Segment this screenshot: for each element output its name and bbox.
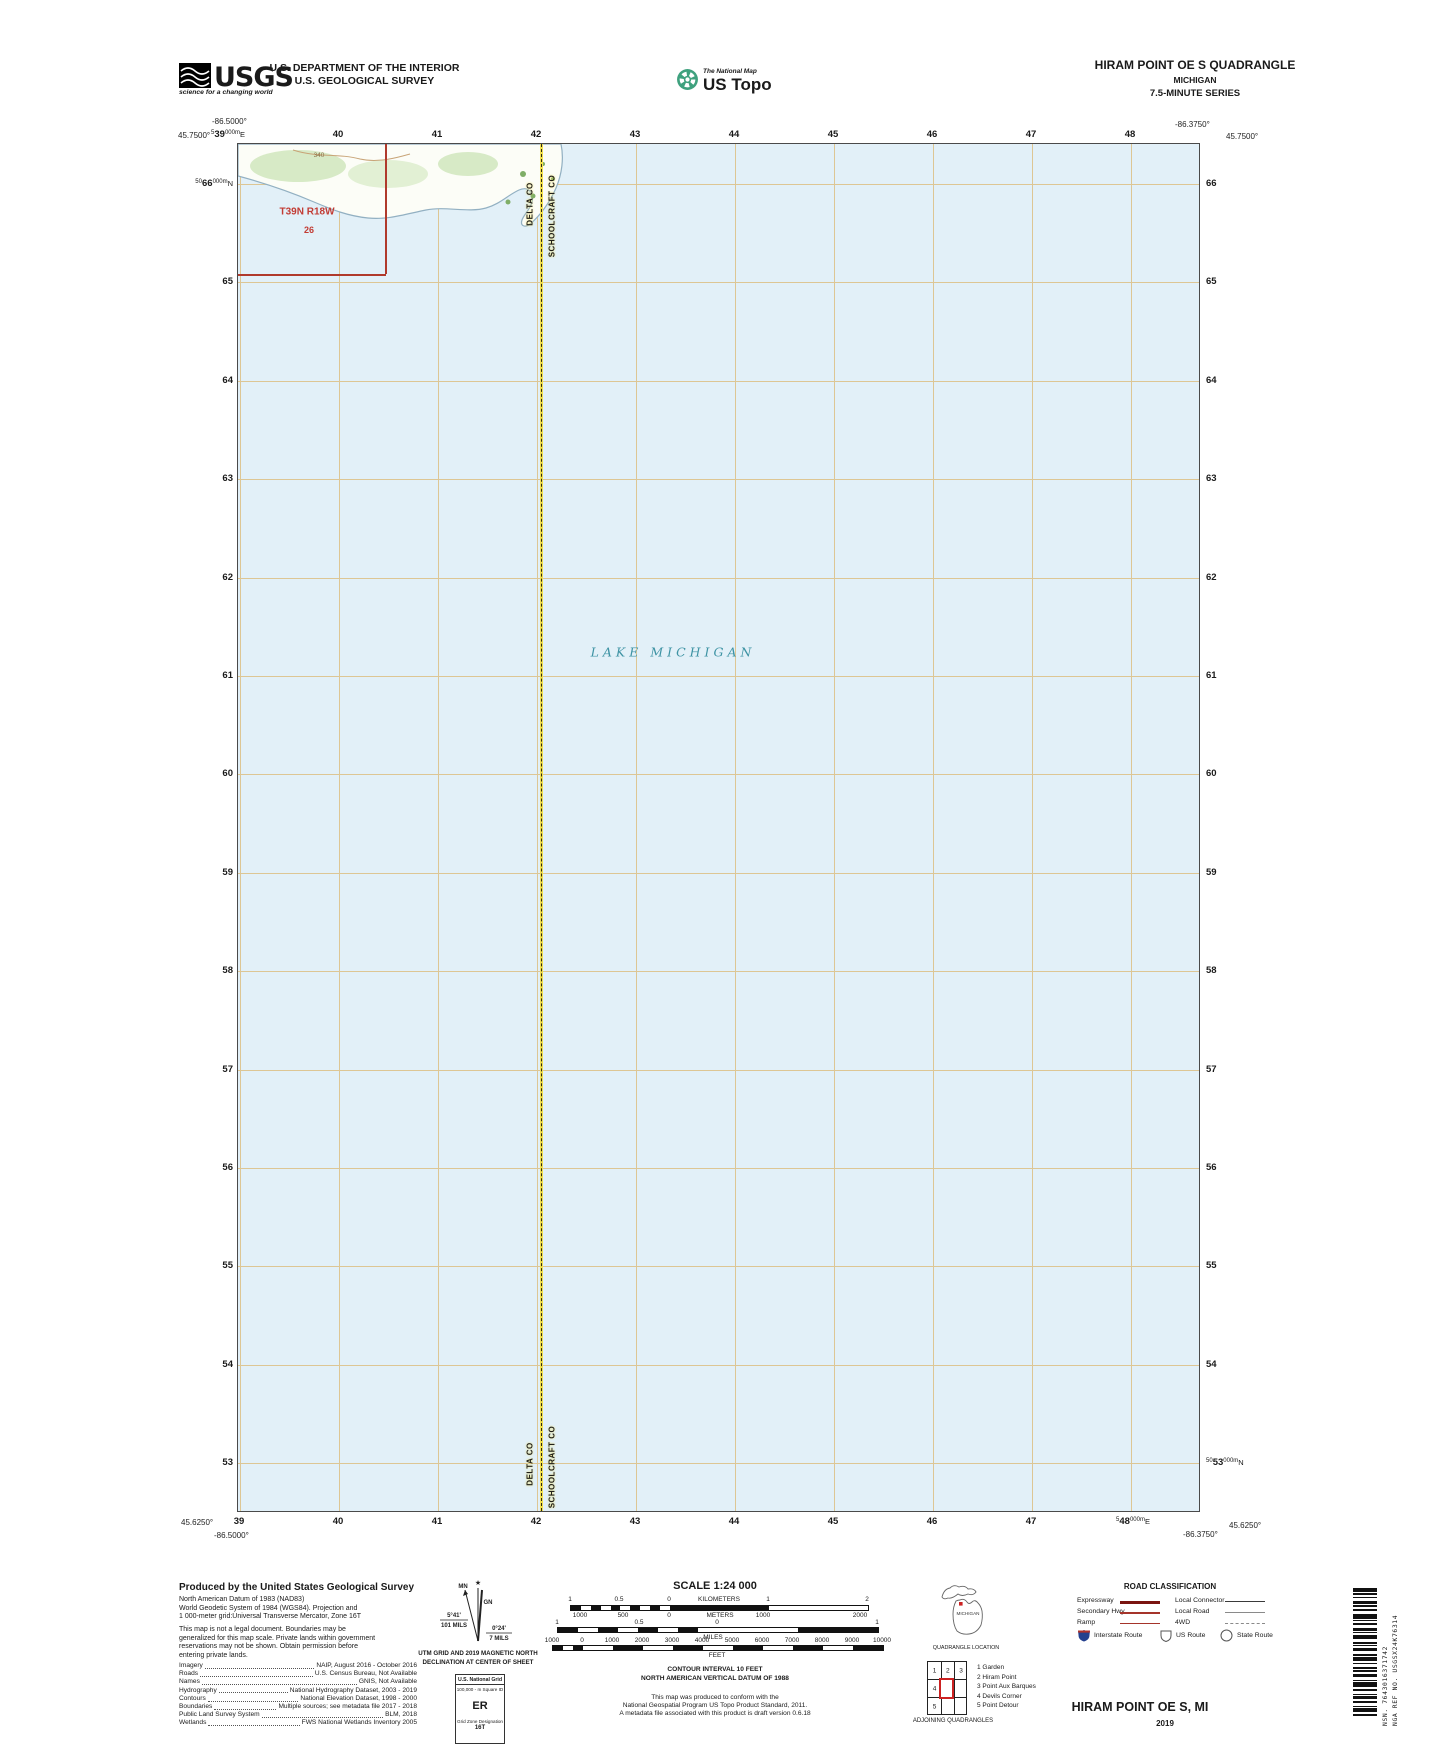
barcode-bar [1353, 1648, 1377, 1651]
mn-mils: 101 MILS [441, 1623, 467, 1629]
barcode-bar [1353, 1635, 1377, 1639]
barcode-bar [1353, 1614, 1377, 1619]
county-label-schoolcraft-bottom: SCHOOLCRAFT CO [548, 1426, 557, 1509]
grid-northing-right: 65 [1206, 276, 1217, 287]
utm-grid-line-horizontal [238, 1463, 1199, 1464]
utm-grid-line-vertical [1131, 144, 1132, 1511]
quad-location-dot [959, 1602, 963, 1606]
scale-ft-label: 7000 [785, 1637, 799, 1644]
corner-bl-lon: -86.5000° [214, 1531, 249, 1540]
utm-grid-line-vertical [1032, 144, 1033, 1511]
utm-grid-line-vertical [636, 144, 637, 1511]
grid-northing-right: 58 [1206, 965, 1217, 976]
scale-ft-label: 9000 [845, 1637, 859, 1644]
scale-bar-feet [552, 1645, 884, 1651]
declination-note1: UTM GRID AND 2019 MAGNETIC NORTH [388, 1650, 568, 1658]
grid-easting-top: 45 [828, 129, 839, 140]
grid-easting-bottom: 43 [630, 1516, 641, 1527]
grid-easting-top: 46 [927, 129, 938, 140]
adjoining-cell-number: 5 [933, 1704, 937, 1711]
grid-northing-left: 57 [140, 1064, 233, 1075]
grid-easting-top: 43 [630, 129, 641, 140]
legal-notes: This map is not a legal document. Bounda… [179, 1626, 417, 1660]
county-label-schoolcraft-top: SCHOOLCRAFT CO [548, 175, 557, 258]
utm-grid-line-horizontal [238, 1070, 1199, 1071]
scale-ft-label: 3000 [665, 1637, 679, 1644]
grid-easting-bottom: 548000mE [1116, 1516, 1150, 1527]
scale-ft-label: 8000 [815, 1637, 829, 1644]
quad-series: 7.5-MINUTE SERIES [1040, 88, 1350, 99]
road-row-expressway: Expressway [1077, 1597, 1114, 1604]
scale-km-label: 1 [568, 1596, 572, 1603]
ramp-line [1120, 1623, 1160, 1624]
usgs-tagline: science for a changing world [179, 89, 291, 96]
quadrangle-location-caption: QUADRANGLE LOCATION [906, 1645, 1026, 1651]
utm-grid-line-horizontal [238, 1266, 1199, 1267]
usng-title: U.S. National Grid [456, 1675, 504, 1685]
barcode-nsn: NSN. 7643016371742 [1381, 1646, 1389, 1726]
legal-line: reservations may not be shown. Obtain pe… [179, 1643, 417, 1652]
grid-northing-right: 60 [1206, 768, 1217, 779]
utm-grid-line-horizontal [238, 1365, 1199, 1366]
current-quad-marker [939, 1678, 954, 1699]
ustopo-label: US Topo [703, 75, 772, 95]
local-connector-line [1225, 1601, 1265, 1602]
true-north-star: ★ [475, 1579, 481, 1587]
grid-northing-left: 53 [140, 1457, 233, 1468]
us-route-shield-icon [1159, 1629, 1173, 1647]
credit-label: Wetlands [179, 1719, 206, 1727]
scale-ft-label: 2000 [635, 1637, 649, 1644]
state-route-label: State Route [1237, 1632, 1273, 1639]
grid-northing-right: 59 [1206, 867, 1217, 878]
township-boundary-horizontal [238, 274, 386, 276]
grid-easting-top: 41 [432, 129, 443, 140]
barcode-bar [1353, 1605, 1377, 1607]
grid-easting-top: 42 [531, 129, 542, 140]
adjoining-legend-item: 1 Garden [977, 1663, 1036, 1673]
mn-degrees: 5°41' [447, 1613, 461, 1619]
credit-row: NamesGNIS, Not Available [179, 1678, 417, 1686]
grid-easting-bottom: 47 [1026, 1516, 1037, 1527]
declination-note2: DECLINATION AT CENTER OF SHEET [388, 1659, 568, 1667]
usgs-topo-sheet: USGS science for a changing world U.S. D… [0, 0, 1445, 1746]
interstate-shield-icon [1077, 1629, 1091, 1647]
local-road-line [1225, 1612, 1265, 1613]
quad-title: HIRAM POINT OE S QUADRANGLE [1040, 58, 1350, 72]
adjoining-quadrangles-grid: 12345 [927, 1661, 967, 1715]
grid-easting-bottom: 46 [927, 1516, 938, 1527]
scale-ft-label: 10000 [873, 1637, 891, 1644]
interstate-route-label: Interstate Route [1094, 1632, 1142, 1639]
utm-grid-line-horizontal [238, 676, 1199, 677]
road-row-local-road: Local Road [1175, 1608, 1209, 1615]
barcode-bar [1353, 1593, 1377, 1595]
grid-easting-top: 44 [729, 129, 740, 140]
utm-grid-line-horizontal [238, 873, 1199, 874]
utm-grid-line-horizontal [238, 578, 1199, 579]
datum-line: North American Datum of 1983 (NAD83) [179, 1596, 417, 1605]
credit-row: Public Land Survey SystemBLM, 2018 [179, 1711, 417, 1719]
corner-tr-lat: 45.7500° [1226, 132, 1258, 141]
corner-br-lat: 45.6250° [1229, 1521, 1261, 1530]
adjoining-cell-number: 4 [933, 1686, 937, 1693]
credit-label: Hydrography [179, 1687, 217, 1695]
scale-ft-unit: FEET [709, 1652, 726, 1659]
utm-grid-line-vertical [339, 144, 340, 1511]
road-row-secondary: Secondary Hwy [1077, 1608, 1125, 1615]
barcode-bar [1353, 1597, 1377, 1598]
datum-line: World Geodetic System of 1984 (WGS84). P… [179, 1605, 417, 1614]
grid-easting-bottom: 41 [432, 1516, 443, 1527]
ustopo-shutter-icon [676, 68, 699, 96]
utm-grid-line-horizontal [238, 381, 1199, 382]
expressway-line [1120, 1601, 1160, 1604]
usng-subtitle: 100,000 - m Square ID [456, 1685, 504, 1692]
data-credits-list: ImageryNAIP, August 2016 - October 2016R… [179, 1662, 417, 1728]
legal-line: entering private lands. [179, 1652, 417, 1661]
adjoining-cell-number: 3 [959, 1668, 963, 1675]
utm-grid-line-horizontal [238, 1168, 1199, 1169]
utm-grid-line-vertical [438, 144, 439, 1511]
grid-easting-bottom: 40 [333, 1516, 344, 1527]
grid-easting-bottom: 44 [729, 1516, 740, 1527]
grid-northing-left: 5066000mN [140, 178, 233, 189]
grid-northing-left: 56 [140, 1162, 233, 1173]
lake-michigan-label: LAKE MICHIGAN [591, 645, 756, 660]
adjoining-cell-number: 1 [933, 1668, 937, 1675]
scale-ft-label: 4000 [695, 1637, 709, 1644]
scale-bar-miles [557, 1627, 879, 1633]
county-line [541, 144, 542, 1511]
barcode-bar [1353, 1706, 1377, 1707]
scale-bar-kilometers [570, 1605, 869, 1611]
credit-label: Boundaries [179, 1703, 212, 1711]
credit-row: RoadsU.S. Census Bureau, Not Available [179, 1670, 417, 1678]
grid-easting-top: 47 [1026, 129, 1037, 140]
barcode-bar [1353, 1645, 1377, 1646]
barcode-bar [1353, 1708, 1377, 1712]
gn-degrees: 0°24' [492, 1626, 506, 1632]
scale-ft-label: 0 [580, 1637, 584, 1644]
credit-row: BoundariesMultiple sources; see metadata… [179, 1703, 417, 1711]
grid-northing-right: 61 [1206, 670, 1217, 681]
barcode-bar [1353, 1628, 1377, 1631]
utm-grid-line-vertical [735, 144, 736, 1511]
utm-grid-line-vertical [537, 144, 538, 1511]
credit-value: Multiple sources; see metadata file 2017… [278, 1703, 417, 1711]
vertical-datum-note: NORTH AMERICAN VERTICAL DATUM OF 1988 [565, 1675, 865, 1683]
legal-line: This map is not a legal document. Bounda… [179, 1626, 417, 1635]
credit-value: BLM, 2018 [385, 1711, 417, 1719]
grid-northing-left: 61 [140, 670, 233, 681]
credit-row: WetlandsFWS National Wetlands Inventory … [179, 1719, 417, 1727]
grid-northing-right: 54 [1206, 1359, 1217, 1370]
sheet-year: 2019 [1045, 1719, 1285, 1728]
barcode-bar [1353, 1654, 1377, 1656]
barcode-bar [1353, 1601, 1377, 1604]
credit-label: Roads [179, 1670, 198, 1678]
ustopo-logo: The National Map US Topo [676, 68, 772, 96]
utm-grid-line-vertical [834, 144, 835, 1511]
barcode-bar [1353, 1701, 1377, 1703]
utm-grid-line-horizontal [238, 774, 1199, 775]
grid-northing-left: 65 [140, 276, 233, 287]
grid-northing-right: 63 [1206, 473, 1217, 484]
road-row-local-connector: Local Connector [1175, 1597, 1225, 1604]
dept-line1: U.S. DEPARTMENT OF THE INTERIOR [262, 62, 467, 75]
scale-m-label: 500 [618, 1612, 629, 1619]
credit-row: ImageryNAIP, August 2016 - October 2016 [179, 1662, 417, 1670]
standard-note2: National Geospatial Program US Topo Prod… [565, 1702, 865, 1710]
scale-m-label: 2000 [853, 1612, 867, 1619]
quadrangle-location-map: MICHIGAN [938, 1581, 990, 1646]
us-route-label: US Route [1176, 1632, 1205, 1639]
credit-label: Names [179, 1678, 200, 1686]
grid-easting-bottom: 45 [828, 1516, 839, 1527]
corner-tr-lon: -86.3750° [1175, 120, 1210, 129]
barcode-bar [1353, 1714, 1377, 1716]
usng-square-id: ER [456, 1692, 504, 1719]
usng-zone: 16T [456, 1724, 504, 1731]
scale-m-label: 0 [667, 1612, 671, 1619]
grid-northing-right: 66 [1206, 178, 1217, 189]
corner-br-lon: -86.3750° [1183, 1530, 1218, 1539]
scale-ft-label: 6000 [755, 1637, 769, 1644]
barcode-bar [1353, 1689, 1377, 1691]
barcode-bar [1353, 1694, 1377, 1695]
scale-ft-label: 1000 [545, 1637, 559, 1644]
contour-interval-note: CONTOUR INTERVAL 10 FEET [565, 1666, 865, 1674]
credit-value: GNIS, Not Available [359, 1678, 417, 1686]
usng-box: U.S. National Grid 100,000 - m Square ID… [455, 1674, 505, 1744]
secondary-hwy-line [1120, 1612, 1160, 1614]
grid-northing-right: 55 [1206, 1260, 1217, 1271]
utm-grid-line-vertical [933, 144, 934, 1511]
township-label: T39N R18W [279, 207, 334, 218]
barcode-bar [1353, 1588, 1377, 1592]
road-row-ramp: Ramp [1077, 1619, 1095, 1626]
usgs-waves-icon [179, 63, 211, 93]
credit-label: Public Land Survey System [179, 1711, 260, 1719]
fourwd-line [1225, 1623, 1265, 1624]
barcode [1353, 1588, 1377, 1725]
state-name-label: MICHIGAN [957, 1611, 980, 1616]
corner-tl-lat: 45.7500° [178, 131, 210, 140]
utm-grid-line-horizontal [238, 971, 1199, 972]
credit-label: Imagery [179, 1662, 203, 1670]
produced-heading: Produced by the United States Geological… [179, 1582, 414, 1593]
barcode-nga-ref: NGA REF NO. USGSX24K76314 [1391, 1615, 1399, 1726]
barcode-bar [1353, 1609, 1377, 1611]
grid-northing-left: 64 [140, 375, 233, 386]
credit-row: HydrographyNational Hydrography Dataset,… [179, 1687, 417, 1695]
quad-state: MICHIGAN [1040, 75, 1350, 85]
standard-note1: This map was produced to conform with th… [565, 1694, 865, 1702]
scale-mi-label: 0.5 [634, 1619, 643, 1626]
datum-line: 1 000-meter grid:Universal Transverse Me… [179, 1613, 417, 1622]
scale-mi-label: 0 [715, 1619, 719, 1626]
utm-grid-line-horizontal [238, 282, 1199, 283]
scale-m-unit: METERS [706, 1612, 733, 1619]
road-row-4wd: 4WD [1175, 1619, 1190, 1626]
scale-km-label: 0.5 [614, 1596, 623, 1603]
scale-m-label: 1000 [756, 1612, 770, 1619]
scale-title: SCALE 1:24 000 [565, 1580, 865, 1592]
corner-bl-lat: 45.6250° [181, 1518, 213, 1527]
grid-easting-bottom: 39 [234, 1516, 245, 1527]
barcode-bar [1353, 1680, 1377, 1681]
grid-northing-right: 56 [1206, 1162, 1217, 1173]
barcode-bar [1353, 1632, 1377, 1633]
grid-easting-bottom: 42 [531, 1516, 542, 1527]
scale-km-label: 1 [766, 1596, 770, 1603]
quad-title-block: HIRAM POINT OE S QUADRANGLE MICHIGAN 7.5… [1040, 58, 1350, 99]
section-number: 26 [304, 225, 314, 235]
grid-northing-left: 59 [140, 867, 233, 878]
grid-northing-left: 58 [140, 965, 233, 976]
barcode-bar [1353, 1682, 1377, 1687]
grid-easting-top: 539000mE [211, 129, 245, 140]
state-route-circle-icon [1220, 1629, 1233, 1647]
grid-northing-left: 63 [140, 473, 233, 484]
contour-label: 340 [314, 152, 325, 159]
utm-grid-line-vertical [240, 144, 241, 1511]
declination-diagram: ★ MN GN 5°41' 101 MILS 0°24' 7 MILS [430, 1576, 530, 1646]
grid-north-label: GN [484, 1600, 493, 1606]
grid-easting-top: 40 [333, 129, 344, 140]
grid-northing-right: 62 [1206, 572, 1217, 583]
adjoining-caption: ADJOINING QUADRANGLES [887, 1718, 1019, 1724]
county-label-delta-top: DELTA CO [526, 182, 535, 225]
barcode-bar [1353, 1674, 1377, 1677]
credit-value: National Elevation Dataset, 1998 - 2000 [300, 1695, 417, 1703]
magnetic-north-label: MN [458, 1584, 467, 1590]
map-neatline: 340 DELTA CO SCHOOLCRAFT CO DELTA CO SCH… [237, 143, 1200, 1512]
grid-northing-left: 54 [140, 1359, 233, 1370]
barcode-bar [1353, 1670, 1377, 1672]
scale-km-label: 0 [667, 1596, 671, 1603]
usng-gzd-label: Grid Zone Designation [456, 1719, 504, 1724]
scale-km-unit: KILOMETERS [698, 1596, 740, 1603]
dept-line2: U.S. GEOLOGICAL SURVEY [262, 75, 467, 88]
barcode-bar [1353, 1620, 1377, 1621]
corner-tl-lon: -86.5000° [212, 117, 247, 126]
scale-km-label: 2 [865, 1596, 869, 1603]
barcode-bar [1353, 1667, 1377, 1669]
barcode-bar [1353, 1663, 1377, 1664]
credit-value: National Hydrography Dataset, 2003 - 201… [290, 1687, 417, 1695]
grid-northing-right: 57 [1206, 1064, 1217, 1075]
grid-easting-top: 48 [1125, 129, 1136, 140]
barcode-bar [1353, 1642, 1377, 1644]
scale-ft-label: 1000 [605, 1637, 619, 1644]
barcode-bar [1353, 1696, 1377, 1699]
grid-northing-left: 62 [140, 572, 233, 583]
national-map-label: The National Map [703, 68, 772, 75]
adjoining-legend-item: 2 Hiram Point [977, 1673, 1036, 1683]
gn-mils: 7 MILS [489, 1636, 508, 1642]
credit-row: ContoursNational Elevation Dataset, 1998… [179, 1695, 417, 1703]
barcode-bar [1353, 1657, 1377, 1661]
grid-northing-left: 55 [140, 1260, 233, 1271]
adjoining-cell-number: 2 [946, 1668, 950, 1675]
adjoining-legend-item: 3 Point Aux Barques [977, 1682, 1036, 1692]
scale-ft-label: 5000 [725, 1637, 739, 1644]
scale-m-label: 1000 [573, 1612, 587, 1619]
scale-mi-label: 1 [555, 1619, 559, 1626]
grid-northing-right: 64 [1206, 375, 1217, 386]
legal-line: generalized for this map scale. Private … [179, 1635, 417, 1644]
grid-northing-left: 60 [140, 768, 233, 779]
utm-grid-line-horizontal [238, 479, 1199, 480]
barcode-bar [1353, 1623, 1377, 1625]
credit-value: FWS National Wetlands Inventory 2005 [302, 1719, 417, 1727]
credit-label: Contours [179, 1695, 206, 1703]
sheet-title: HIRAM POINT OE S, MI [1020, 1700, 1260, 1714]
credit-value: U.S. Census Bureau, Not Available [315, 1670, 417, 1678]
scale-mi-label: 1 [875, 1619, 879, 1626]
grid-northing-right: 5053000mN [1206, 1457, 1244, 1468]
county-label-delta-bottom: DELTA CO [526, 1442, 535, 1485]
standard-note3: A metadata file associated with this pro… [565, 1710, 865, 1718]
datum-notes: North American Datum of 1983 (NAD83)Worl… [179, 1596, 417, 1622]
department-header: U.S. DEPARTMENT OF THE INTERIOR U.S. GEO… [262, 62, 467, 88]
township-boundary-vertical [385, 144, 387, 274]
road-classification-legend: Expressway Local Connector Secondary Hwy… [1065, 1582, 1280, 1644]
